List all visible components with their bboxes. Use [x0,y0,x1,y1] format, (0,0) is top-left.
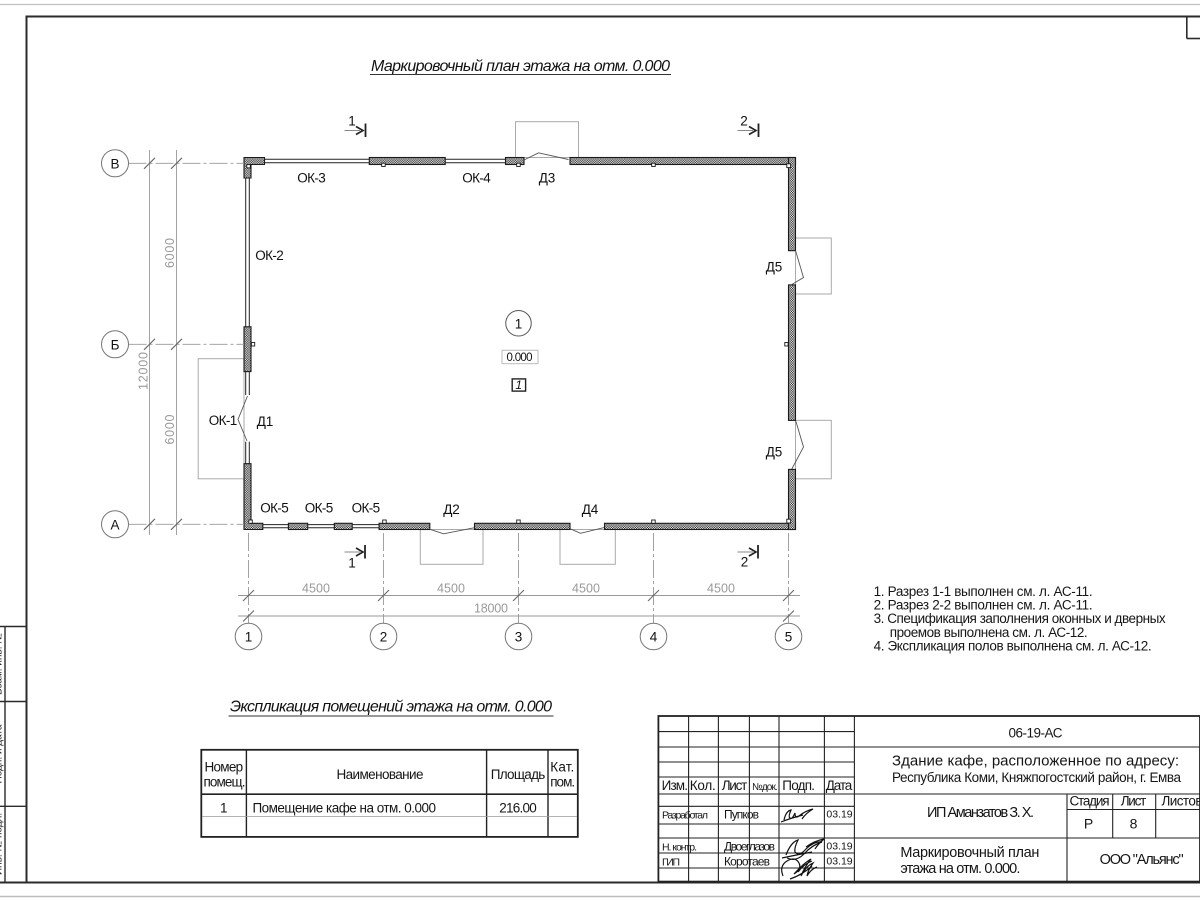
svg-text:Республика Коми, Княжпогостски: Республика Коми, Княжпогостский район, г… [892,770,1181,785]
svg-text:ОК-4: ОК-4 [462,171,491,186]
svg-text:Д1: Д1 [257,414,274,429]
svg-text:3: 3 [515,630,523,645]
svg-text:216.00: 216.00 [499,801,537,816]
svg-text:12000: 12000 [137,352,151,390]
svg-text:18000: 18000 [474,602,508,616]
svg-text:№док.: №док. [752,782,778,793]
svg-text:4500: 4500 [572,582,600,596]
svg-text:03.19: 03.19 [826,809,852,821]
svg-text:Подп. и дата: Подп. и дата [0,724,5,783]
svg-text:помещ.: помещ. [204,775,246,790]
svg-text:ОК-1: ОК-1 [209,413,238,428]
svg-text:Листов: Листов [1162,794,1200,809]
svg-text:ОК-5: ОК-5 [260,500,289,515]
svg-text:4: 4 [650,630,658,645]
svg-text:2: 2 [741,555,749,570]
svg-text:Лист: Лист [722,778,748,793]
svg-text:4500: 4500 [707,582,735,596]
svg-text:Пупков: Пупков [724,808,759,822]
svg-text:Д4: Д4 [582,502,599,517]
svg-text:Д2: Д2 [443,502,460,517]
svg-text:Маркировочный план: Маркировочный план [900,845,1039,861]
svg-text:ОК-3: ОК-3 [297,171,326,186]
svg-text:2: 2 [740,114,748,129]
svg-text:Р: Р [1084,816,1093,832]
svg-text:8: 8 [1130,816,1138,832]
svg-text:Н. контр.: Н. контр. [662,842,697,854]
svg-text:1: 1 [515,378,522,392]
svg-text:5: 5 [785,630,793,645]
svg-text:1: 1 [348,556,356,571]
svg-text:Площадь: Площадь [491,767,546,782]
svg-text:4. Экспликация полов выполнена: 4. Экспликация полов выполнена см. л. АС… [874,638,1152,653]
svg-text:1: 1 [245,630,253,645]
svg-text:ГИП: ГИП [662,857,680,869]
svg-text:ОК-5: ОК-5 [305,500,334,515]
svg-text:А: А [110,517,119,532]
svg-text:03.19: 03.19 [826,841,852,853]
svg-text:1: 1 [348,114,356,129]
svg-text:этажа на отм. 0.000.: этажа на отм. 0.000. [900,861,1020,877]
svg-text:Коротаев: Коротаев [724,855,770,869]
svg-text:0.000: 0.000 [507,352,533,364]
svg-text:Двоеглазов: Двоеглазов [724,840,775,854]
svg-text:6000: 6000 [163,414,177,444]
svg-text:1: 1 [220,801,228,816]
svg-text:Помещение кафе на отм. 0.000: Помещение кафе на отм. 0.000 [253,801,437,816]
svg-text:2: 2 [380,630,388,645]
svg-text:ИП Аманзатов З. Х.: ИП Аманзатов З. Х. [927,805,1034,821]
svg-text:Номер: Номер [205,760,244,775]
svg-text:Стадия: Стадия [1070,794,1110,809]
svg-text:Инв. № подл.: Инв. № подл. [0,813,5,875]
svg-text:ОК-2: ОК-2 [255,248,284,263]
svg-text:Д5: Д5 [766,445,783,460]
svg-text:03.19: 03.19 [826,856,852,868]
svg-text:Кол.: Кол. [690,778,716,793]
svg-text:пом.: пом. [550,775,575,790]
svg-text:В: В [110,156,119,171]
svg-text:Экспликация помещений этажа на: Экспликация помещений этажа на отм. 0.00… [230,699,552,716]
svg-text:Дата: Дата [826,778,853,793]
svg-text:Д5: Д5 [766,260,783,275]
svg-text:ОК-5: ОК-5 [352,500,381,515]
svg-text:4500: 4500 [302,582,330,596]
svg-text:6000: 6000 [163,238,177,268]
svg-text:Кат.: Кат. [550,760,574,775]
svg-text:Наименование: Наименование [337,767,424,782]
svg-text:Маркировочный план этажа на от: Маркировочный план этажа на отм. 0.000 [371,58,670,75]
svg-text:Б: Б [111,337,120,352]
svg-text:4500: 4500 [437,582,465,596]
svg-text:06-19-АС: 06-19-АС [1009,726,1063,741]
svg-text:Изм.: Изм. [662,778,688,793]
svg-text:ООО "Альянс": ООО "Альянс" [1100,852,1184,868]
svg-text:Разработал: Разработал [662,810,708,822]
svg-text:Лист: Лист [1121,794,1147,809]
svg-text:Взам. инв. №: Взам. инв. № [0,633,5,695]
svg-text:1: 1 [515,316,523,331]
svg-text:Подп.: Подп. [782,778,815,793]
svg-text:Д3: Д3 [539,171,556,186]
svg-text:Здание кафе, расположенное по: Здание кафе, расположенное по адресу: [892,753,1179,770]
